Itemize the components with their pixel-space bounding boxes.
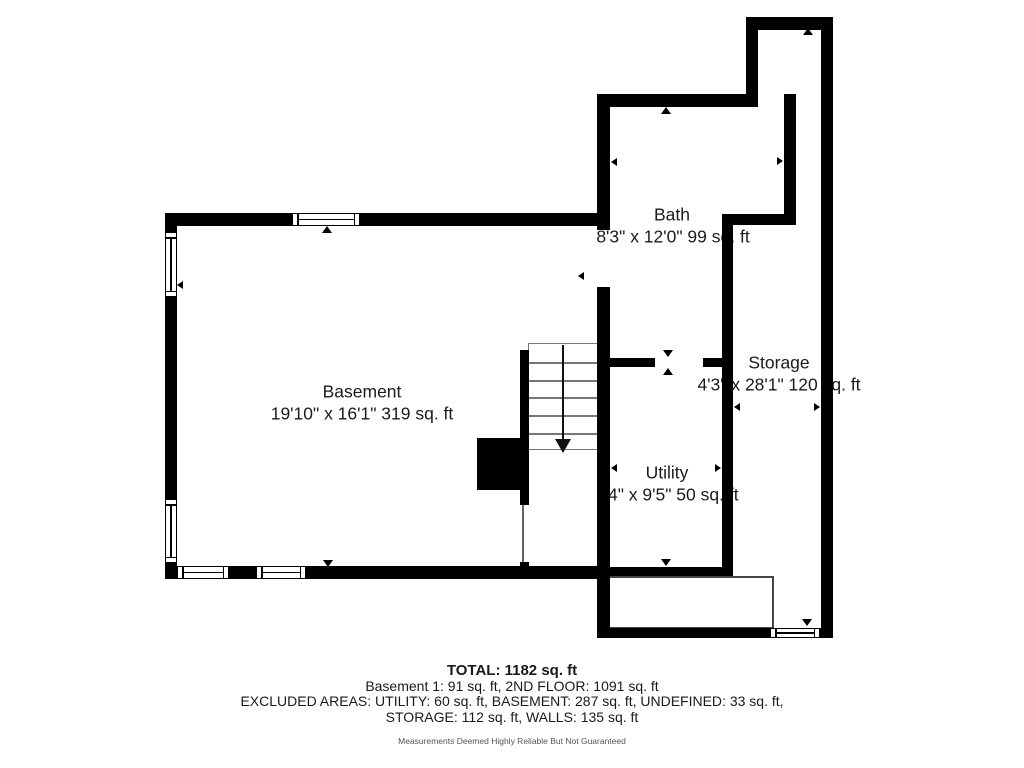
- wall-spine-upper: [597, 94, 610, 230]
- window-pane-line: [170, 505, 172, 557]
- marker-bath-right-icon: [777, 157, 783, 165]
- floor-plan: Basement 19'10" x 16'1" 319 sq. ft Bath …: [0, 0, 1024, 768]
- window-cap: [354, 214, 356, 225]
- marker-utility-top-icon: [663, 368, 673, 375]
- wall-right-outer: [821, 17, 833, 638]
- window-basement-left-lower: [165, 499, 177, 563]
- wall-basement-bottom: [165, 566, 608, 579]
- summary-footer: TOTAL: 1182 sq. ft Basement 1: 91 sq. ft…: [0, 663, 1024, 750]
- summary-total: TOTAL: 1182 sq. ft: [0, 663, 1024, 679]
- room-dims-basement: 19'10" x 16'1" 319 sq. ft: [271, 404, 454, 425]
- window-cap: [223, 567, 225, 578]
- wall-bath-top: [597, 94, 758, 107]
- window-cap: [182, 567, 184, 578]
- room-label-storage: Storage: [748, 353, 809, 374]
- window-cap: [261, 567, 263, 578]
- marker-storage-bottom-icon: [802, 619, 812, 626]
- marker-utility-left-icon: [611, 464, 617, 472]
- stair-direction-line: [562, 345, 564, 441]
- undefined-area-outline: [606, 576, 774, 629]
- stair-down-arrow-icon: [555, 439, 571, 453]
- wall-top-outer: [746, 17, 833, 30]
- window-cap: [166, 237, 176, 239]
- marker-storage-left-icon: [734, 403, 740, 411]
- stair-tread: [529, 415, 599, 417]
- marker-utility-right-icon: [715, 464, 721, 472]
- wall-spine-main: [597, 287, 610, 638]
- window-cap: [300, 567, 302, 578]
- marker-basement-bottom-icon: [323, 560, 333, 567]
- stair-tread: [529, 397, 599, 399]
- wall-storage-left: [722, 214, 733, 575]
- marker-basement-top-icon: [322, 226, 332, 233]
- marker-bath-left-icon: [611, 158, 617, 166]
- room-label-bath: Bath: [654, 205, 690, 226]
- stair-tread: [529, 433, 599, 435]
- stair-tread: [529, 362, 599, 364]
- wall-utility-bottom: [597, 567, 733, 576]
- window-bottom-right: [770, 628, 820, 638]
- wall-bath-utility-divider-left: [597, 358, 655, 367]
- window-cap: [297, 214, 299, 225]
- summary-floors: Basement 1: 91 sq. ft, 2ND FLOOR: 1091 s…: [0, 679, 1024, 695]
- wall-stair-landing-block: [477, 438, 529, 490]
- marker-bath-top-icon: [661, 107, 671, 114]
- marker-basement-left-icon: [177, 281, 183, 289]
- summary-excluded-2: STORAGE: 112 sq. ft, WALLS: 135 sq. ft: [0, 710, 1024, 726]
- stairs: [528, 343, 600, 450]
- wall-bath-utility-divider-right: [703, 358, 733, 367]
- window-basement-bottom-2: [256, 566, 306, 579]
- wall-stub-bottom: [520, 562, 529, 576]
- marker-storage-top-icon: [803, 28, 813, 35]
- marker-basement-right-icon: [578, 272, 584, 280]
- window-pane-line: [183, 572, 223, 574]
- stair-side-line: [522, 505, 524, 567]
- room-label-basement: Basement: [323, 382, 402, 403]
- room-label-utility: Utility: [646, 463, 689, 484]
- window-basement-bottom-1: [177, 566, 229, 579]
- window-pane-line: [262, 572, 300, 574]
- window-basement-left-upper: [165, 232, 177, 297]
- window-cap: [166, 557, 176, 559]
- summary-disclaimer: Measurements Deemed Highly Reliable But …: [0, 734, 1024, 750]
- window-pane-line: [298, 219, 354, 221]
- window-cap: [775, 629, 777, 637]
- window-pane-line: [170, 238, 172, 291]
- marker-utility-bottom-icon: [661, 559, 671, 566]
- window-cap: [814, 629, 816, 637]
- stair-tread: [529, 380, 599, 382]
- wall-topsection-left: [746, 17, 758, 107]
- window-cap: [166, 504, 176, 506]
- window-cap: [166, 291, 176, 293]
- wall-bath-right: [784, 94, 796, 225]
- marker-bath-bottom-icon: [663, 350, 673, 357]
- window-basement-top: [292, 213, 360, 226]
- window-pane-line: [776, 632, 814, 634]
- marker-storage-right-icon: [814, 403, 820, 411]
- summary-excluded-1: EXCLUDED AREAS: UTILITY: 60 sq. ft, BASE…: [0, 694, 1024, 710]
- wall-basement-top: [165, 213, 608, 226]
- room-dims-utility: 4" x 9'5" 50 sq. ft: [608, 485, 739, 506]
- wall-bath-bottom-right: [722, 214, 796, 225]
